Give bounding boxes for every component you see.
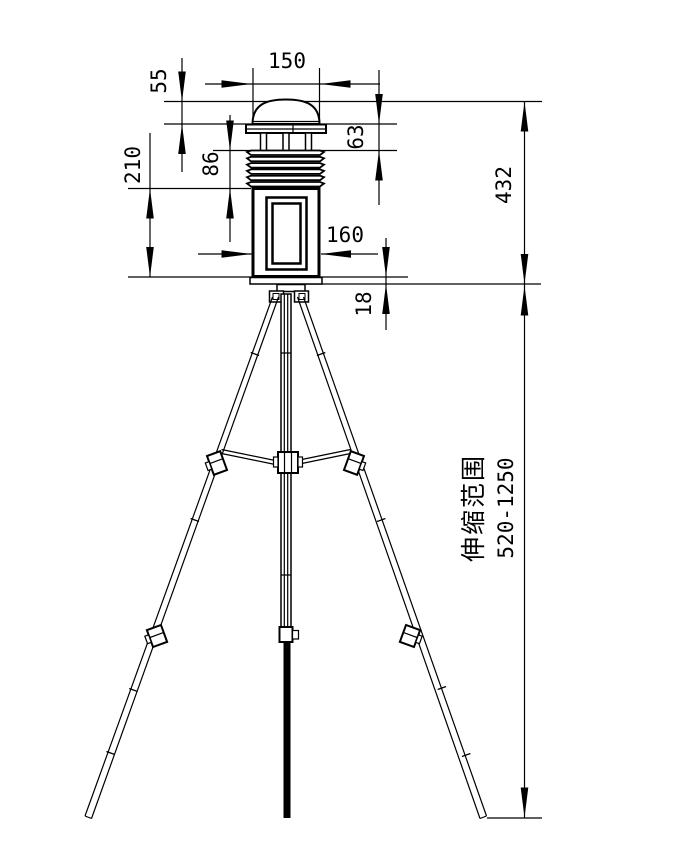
louver-fin: [247, 157, 324, 162]
arrow-86-top: [226, 121, 234, 151]
dim-label-55: 55: [147, 68, 171, 93]
dim-label-86: 86: [199, 151, 223, 176]
telescopic-range-label: 伸缩范围: [459, 454, 488, 562]
arrow-18-top: [382, 247, 390, 277]
arrow-432-top: [521, 102, 529, 132]
spreader-left: [222, 450, 281, 466]
tripod-leg-left: [85, 297, 279, 819]
dim-label-160: 160: [326, 223, 364, 247]
dim-label-210: 210: [121, 146, 145, 184]
stem-center: [283, 133, 289, 151]
arrow-86-bottom: [226, 189, 234, 219]
louver-fin: [247, 182, 324, 187]
arrow-160-right: [321, 250, 351, 258]
louver-fin: [247, 163, 324, 168]
louver-fin: [247, 151, 324, 156]
weather-station-figure: [246, 100, 326, 285]
arrow-432-bottom: [521, 254, 529, 284]
display-window-inner: [273, 204, 301, 264]
arrow-63-top: [375, 94, 383, 124]
spreader-hub: [278, 452, 298, 473]
arrow-210-bottom: [146, 247, 154, 277]
arrow-210-top: [146, 189, 154, 219]
arrowheads: [146, 72, 528, 818]
stem-right: [306, 133, 312, 151]
arrow-520-bottom: [521, 788, 529, 818]
radiation-shield-louvers: [247, 151, 324, 187]
clamp-body: [400, 625, 420, 647]
dim-label-432: 432: [492, 166, 516, 204]
dim-label-150: 150: [268, 49, 306, 73]
column-joint-clamp: [280, 627, 293, 642]
sensor-dome: [253, 100, 320, 125]
hub-knob-left: [274, 457, 279, 467]
column-lower-pole: [284, 642, 291, 818]
arrow-63-bottom: [375, 151, 383, 181]
arrow-150-right: [321, 80, 351, 88]
drawing-page: 150 55 63 86 210 160 18 432 伸缩范围 520-125…: [0, 0, 680, 864]
base-plate: [250, 278, 322, 285]
spreader-arms: [222, 450, 351, 474]
leg-right-ticks: [317, 353, 471, 757]
tripod: [85, 285, 487, 819]
leg-clamp-upper-right: [344, 451, 368, 476]
dim-label-63: 63: [344, 124, 368, 149]
louver-fin: [247, 176, 324, 181]
arrow-18-bottom: [382, 284, 390, 314]
arrow-150-left: [222, 80, 252, 88]
stem-left: [261, 133, 267, 151]
technical-drawing: 150 55 63 86 210 160 18 432 伸缩范围 520-125…: [0, 0, 680, 864]
arrow-55-bottom: [178, 124, 186, 154]
louver-fin: [247, 169, 324, 174]
leg-left-tube: [85, 297, 279, 819]
extension-lines: [128, 68, 542, 818]
clamp-body: [147, 625, 167, 647]
arrow-55-top: [178, 72, 186, 102]
dim-label-18: 18: [352, 291, 376, 316]
telescopic-range-value: 520-1250: [494, 457, 518, 558]
arrow-520-top: [521, 286, 529, 316]
arrow-160-left: [222, 250, 252, 258]
leg-clamp-upper-left: [203, 451, 227, 476]
column-joint-knob: [293, 631, 299, 640]
hub-knob-right: [298, 457, 303, 467]
tripod-center-column: [280, 294, 299, 818]
